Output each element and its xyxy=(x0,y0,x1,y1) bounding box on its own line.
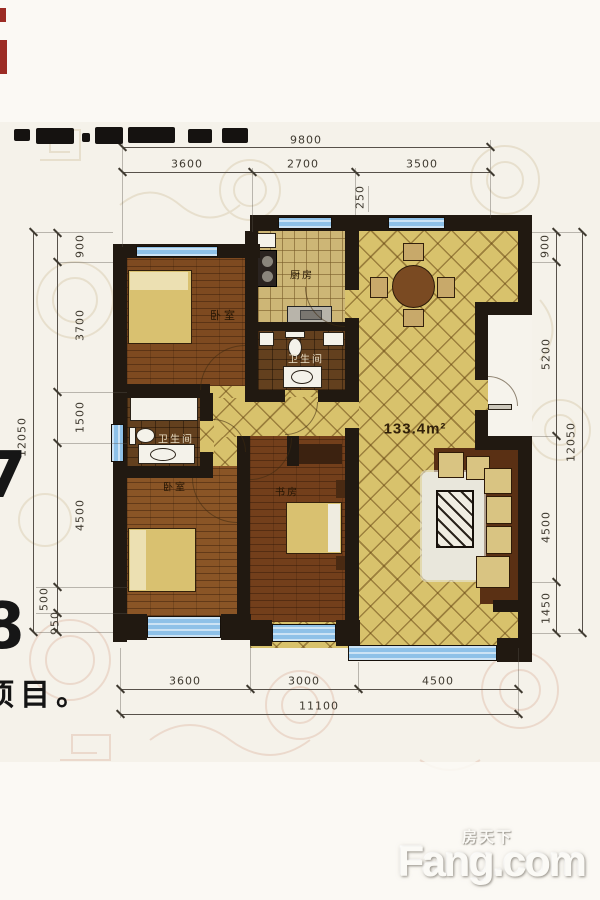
dim-label: 900 xyxy=(539,234,552,258)
fang-watermark-en: Fang.com xyxy=(398,838,585,887)
ext-line xyxy=(60,443,127,444)
bath-shelf xyxy=(323,332,344,346)
ext-line xyxy=(532,232,584,233)
clipped-text-fragment xyxy=(95,127,123,144)
wall xyxy=(200,393,213,421)
window-kitchen xyxy=(278,217,332,229)
dining-chair xyxy=(437,277,455,298)
window-bedroom-2 xyxy=(147,616,221,638)
sofa-cushion xyxy=(476,556,510,588)
bed-pillow xyxy=(130,272,188,290)
ext-line xyxy=(358,662,359,693)
wall xyxy=(345,215,359,290)
dim-line xyxy=(120,714,518,715)
entry-door-leaf xyxy=(488,404,512,410)
wall xyxy=(518,436,532,640)
exterior-notch xyxy=(488,315,532,436)
toilet-tank xyxy=(285,331,305,338)
clipped-text-fragment xyxy=(188,129,212,143)
wall xyxy=(113,614,147,640)
page-top-whitespace xyxy=(0,0,600,122)
burner xyxy=(262,271,273,282)
dim-label-bottom-total: 11100 xyxy=(299,700,339,713)
dining-table xyxy=(392,265,435,308)
room-label-bathroom-top: 卫生间 xyxy=(288,351,324,366)
ext-line xyxy=(532,582,558,583)
ext-line xyxy=(36,613,127,614)
wall xyxy=(493,600,518,612)
dim-label: 4500 xyxy=(422,675,454,688)
room-label-kitchen: 厨房 xyxy=(290,267,314,282)
wall xyxy=(113,384,210,398)
sink-basin xyxy=(150,448,176,461)
red-edge-mark xyxy=(0,40,7,74)
ext-line xyxy=(36,632,113,633)
wall xyxy=(475,302,488,380)
window-living xyxy=(348,645,497,661)
wall xyxy=(237,436,250,622)
wall xyxy=(245,390,285,402)
wall xyxy=(345,428,359,626)
dim-label-offset: 250 xyxy=(354,185,367,209)
wall xyxy=(488,302,532,315)
ext-line xyxy=(532,436,558,437)
dim-label: 500 xyxy=(38,587,51,611)
wall xyxy=(245,244,258,397)
toilet-tank xyxy=(129,427,136,445)
clipped-left-glyph: 8 xyxy=(0,595,25,659)
dim-label-top-total: 9800 xyxy=(290,134,322,147)
dim-label: 4500 xyxy=(540,511,553,543)
clipped-text-fragment xyxy=(14,129,30,141)
ext-line xyxy=(250,645,251,693)
wall xyxy=(497,638,532,662)
sink-basin xyxy=(291,370,313,384)
window-bedroom-1 xyxy=(136,246,218,257)
ext-line xyxy=(36,232,113,233)
wall xyxy=(221,614,251,640)
ext-line xyxy=(368,186,369,212)
ext-line xyxy=(518,648,519,718)
sofa-cushion xyxy=(438,452,464,478)
dim-label-right-total: 12050 xyxy=(565,422,578,462)
red-edge-mark xyxy=(0,8,6,22)
scanned-floorplan-page: 卧室 厨房 卫生间 卫生间 书房 卧室 133.4m² 9800 3600 27… xyxy=(0,0,600,900)
clipped-text-fragment xyxy=(222,128,248,143)
ext-line xyxy=(120,648,121,718)
dining-chair xyxy=(403,309,424,327)
wall xyxy=(113,466,213,478)
dim-label: 3000 xyxy=(288,675,320,688)
dim-line xyxy=(122,172,490,173)
dim-label: 3600 xyxy=(169,675,201,688)
dim-label: 3600 xyxy=(171,158,203,171)
toilet-bowl xyxy=(136,428,155,443)
room-label-bedroom-1: 卧室 xyxy=(210,307,238,323)
wardrobe xyxy=(298,444,342,464)
wall xyxy=(336,620,360,646)
dim-label: 3500 xyxy=(406,158,438,171)
washing-machine xyxy=(259,332,274,346)
ext-line xyxy=(60,262,113,263)
bed-blanket xyxy=(328,504,340,552)
room-label-bathroom-left: 卫生间 xyxy=(158,431,194,446)
ext-line xyxy=(122,140,123,247)
clipped-text-fragment xyxy=(36,128,74,144)
room-label-study: 书房 xyxy=(275,484,299,499)
coffee-table xyxy=(436,490,474,548)
clipped-bottom-text: 项目。 xyxy=(0,670,92,714)
window-study xyxy=(272,624,336,642)
dim-label: 3700 xyxy=(74,309,87,341)
dim-label: 1450 xyxy=(540,592,553,624)
dim-label: 4500 xyxy=(74,499,87,531)
clipped-text-fragment xyxy=(128,127,175,143)
window-dining xyxy=(388,217,445,229)
room-label-bedroom-2: 卧室 xyxy=(163,479,187,494)
clipped-text-fragment xyxy=(82,133,90,142)
sofa-cushion xyxy=(484,468,512,494)
dim-line xyxy=(57,233,58,632)
sofa-cushion xyxy=(486,496,512,524)
wall xyxy=(318,390,359,402)
ext-line xyxy=(490,140,491,218)
ext-line xyxy=(532,633,584,634)
dining-chair xyxy=(403,243,424,261)
dim-label: 5200 xyxy=(540,338,553,370)
door-gap-floor xyxy=(198,418,214,454)
dim-label: 900 xyxy=(74,234,87,258)
dim-line xyxy=(120,689,518,690)
wall xyxy=(250,620,272,646)
dining-chair xyxy=(370,277,388,298)
bed-pillow xyxy=(130,530,146,590)
wall xyxy=(518,215,532,315)
sofa-cushion xyxy=(486,526,512,554)
area-label: 133.4m² xyxy=(384,421,447,438)
clipped-left-glyph: 7 xyxy=(0,444,27,508)
dim-label: 2700 xyxy=(287,158,319,171)
ext-line xyxy=(60,392,127,393)
wall xyxy=(245,231,258,245)
dim-line xyxy=(33,232,34,632)
burner xyxy=(262,256,273,267)
ext-line xyxy=(36,587,127,588)
dim-line xyxy=(582,232,583,633)
bathtub xyxy=(130,396,198,421)
ext-line xyxy=(532,262,558,263)
stove xyxy=(257,250,277,287)
dim-label: 1500 xyxy=(74,401,87,433)
fang-watermark: 房天下 Fang.com xyxy=(398,830,598,892)
dim-line xyxy=(556,232,557,633)
dim-line xyxy=(122,147,490,148)
ext-line xyxy=(252,168,253,232)
